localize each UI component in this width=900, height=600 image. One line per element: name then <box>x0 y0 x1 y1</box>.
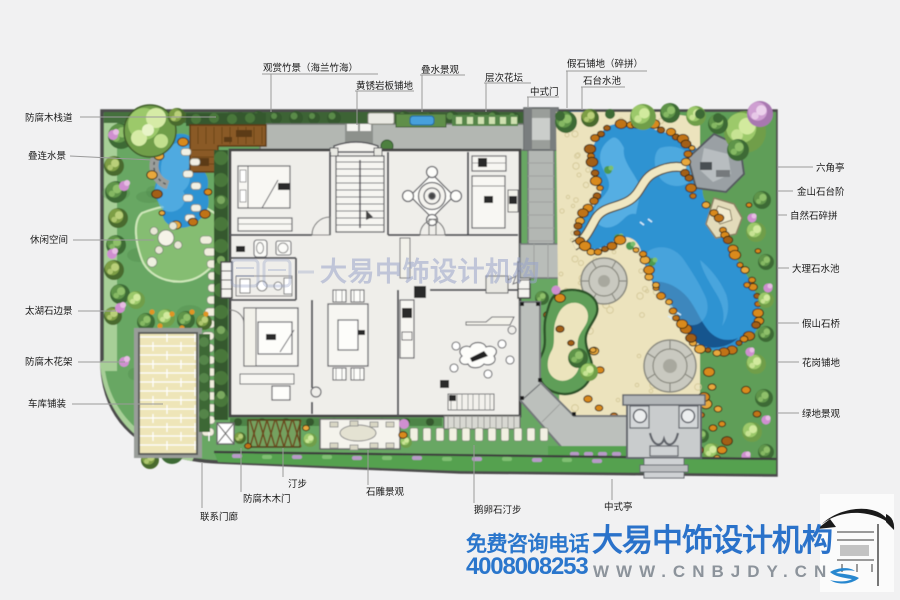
svg-text:大理石水池: 大理石水池 <box>792 263 840 275</box>
svg-text:层次花坛: 层次花坛 <box>485 72 524 84</box>
svg-text:石雕景观: 石雕景观 <box>366 486 405 498</box>
svg-text:防腐木花架: 防腐木花架 <box>25 356 73 368</box>
svg-text:联系门廊: 联系门廊 <box>200 511 239 523</box>
svg-text:太湖石边景: 太湖石边景 <box>25 305 73 317</box>
svg-text:叠水景观: 叠水景观 <box>421 64 460 76</box>
svg-text:中式亭: 中式亭 <box>604 501 633 513</box>
svg-text:花岗铺地: 花岗铺地 <box>802 357 841 369</box>
svg-text:4008008253: 4008008253 <box>466 553 588 580</box>
svg-text:金山石台阶: 金山石台阶 <box>797 186 845 198</box>
svg-text:叠连水景: 叠连水景 <box>28 150 66 162</box>
svg-text:六角亭: 六角亭 <box>816 162 845 174</box>
svg-text:休闲空间: 休闲空间 <box>30 234 68 246</box>
svg-text:黄锈岩板铺地: 黄锈岩板铺地 <box>356 80 414 92</box>
svg-text:车库铺装: 车库铺装 <box>28 398 67 410</box>
svg-text:中式门: 中式门 <box>530 86 559 98</box>
svg-text:汀步: 汀步 <box>288 479 307 490</box>
svg-text:防腐木木门: 防腐木木门 <box>243 493 291 505</box>
svg-text:鹅卵石汀步: 鹅卵石汀步 <box>474 504 522 516</box>
svg-text:绿地景观: 绿地景观 <box>802 408 841 420</box>
svg-text:大易中饰设计机构: 大易中饰设计机构 <box>592 523 832 558</box>
svg-text:假山石桥: 假山石桥 <box>802 318 841 330</box>
svg-text:假石铺地（碎拼）: 假石铺地（碎拼） <box>567 58 643 70</box>
svg-text:防腐木栈道: 防腐木栈道 <box>25 112 73 124</box>
svg-text:WWW.CNBJDY.CN: WWW.CNBJDY.CN <box>593 562 833 581</box>
svg-text:观赏竹景（海兰竹海）: 观赏竹景（海兰竹海） <box>263 62 358 74</box>
svg-text:石台水池: 石台水池 <box>583 75 622 87</box>
svg-text:大易中饰设计机构: 大易中饰设计机构 <box>320 257 540 287</box>
svg-text:自然石碎拼: 自然石碎拼 <box>790 210 838 222</box>
